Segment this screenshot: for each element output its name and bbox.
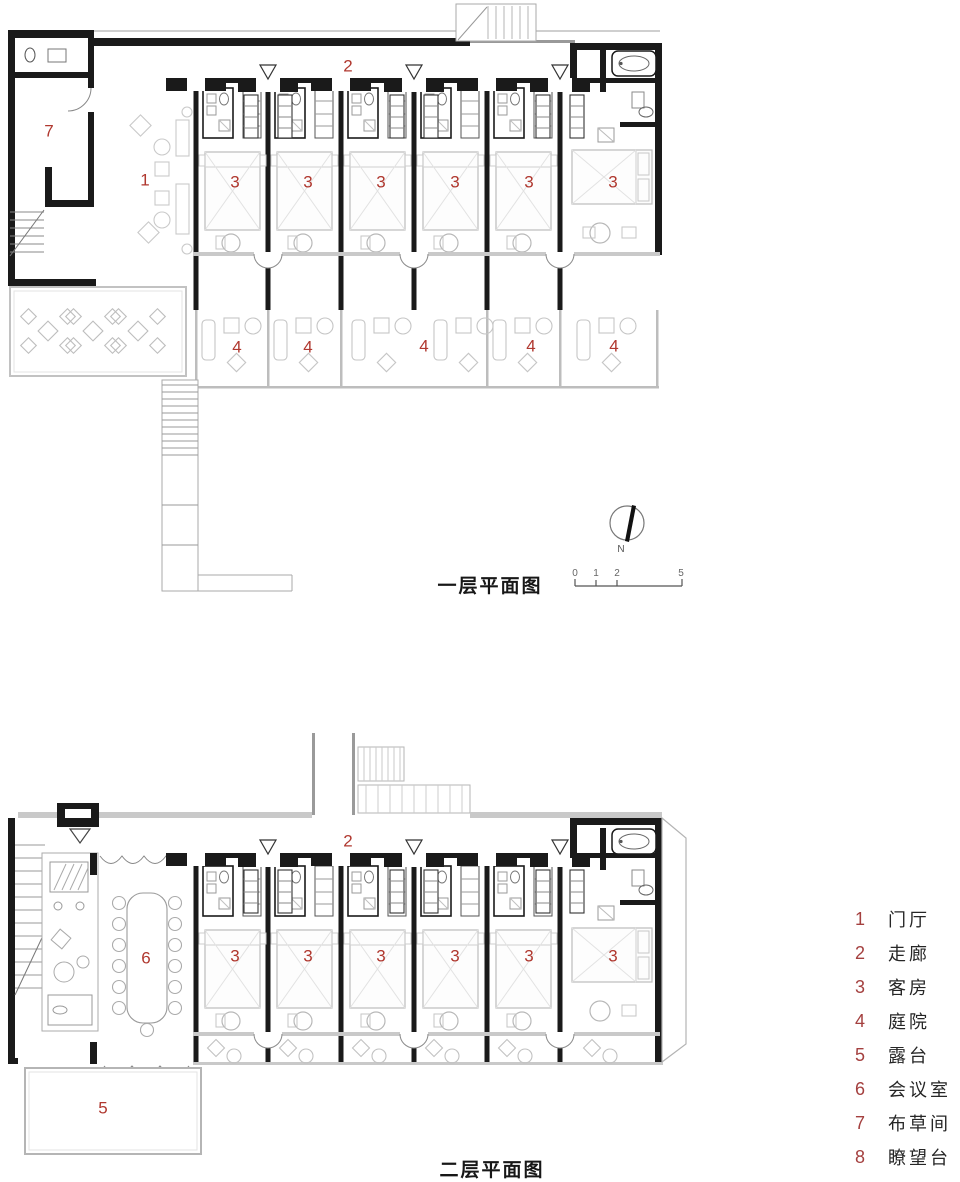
- lobby-furniture: [130, 107, 192, 254]
- legend-label: 露台: [888, 1042, 930, 1068]
- room-label-guest: 3: [230, 948, 239, 965]
- legend-row: 8 瞭望台: [848, 1140, 951, 1174]
- legend-label: 客房: [888, 974, 930, 1000]
- room-label-guest: 3: [450, 174, 459, 191]
- legend-label: 庭院: [888, 1008, 930, 1034]
- legend-label: 会议室: [888, 1076, 951, 1102]
- scale-tick: 2: [614, 568, 620, 579]
- room-label-lobby: 1: [140, 172, 149, 189]
- legend-number: 6: [848, 1079, 872, 1100]
- room-label-corridor: 2: [343, 58, 352, 75]
- plan2-title: 二层平面图: [439, 1155, 544, 1182]
- legend-label: 走廊: [888, 940, 930, 966]
- legend-number: 5: [848, 1045, 872, 1066]
- legend-number: 4: [848, 1011, 872, 1032]
- room-label-corridor: 2: [343, 833, 352, 850]
- scale-tick: 5: [678, 568, 684, 579]
- lookout-deck-outline: [662, 818, 686, 1062]
- room-label-meeting: 6: [141, 950, 150, 967]
- room-label-courtyard: 4: [419, 338, 428, 355]
- room-label-guest: 3: [230, 174, 239, 191]
- legend-number: 1: [848, 909, 872, 930]
- legend-number: 2: [848, 943, 872, 964]
- room-label-courtyard: 4: [232, 339, 241, 356]
- room-label-linen: 7: [44, 123, 53, 140]
- room-label-guest: 3: [524, 174, 533, 191]
- room-label-courtyard: 4: [303, 339, 312, 356]
- legend-row: 4 庭院: [848, 1004, 951, 1038]
- scale-bar: [575, 579, 682, 586]
- legend-row: 3 客房: [848, 970, 951, 1004]
- legend-row: 2 走廊: [848, 936, 951, 970]
- legend: 1 门厅 2 走廊 3 客房 4 庭院 5 露台 6 会议室 7 布草间 8 瞭…: [848, 902, 951, 1174]
- floor-plan-sheet: 7 1 2 3 3 3 3 3 3 4 4 4 4 4 2 6 3 3 3 3 …: [0, 0, 960, 1182]
- legend-number: 7: [848, 1113, 872, 1134]
- legend-label: 门厅: [888, 906, 930, 932]
- exterior-stair: [162, 380, 292, 591]
- legend-number: 8: [848, 1147, 872, 1168]
- room-label-courtyard: 4: [526, 338, 535, 355]
- legend-row: 1 门厅: [848, 902, 951, 936]
- north-arrow-icon: [610, 505, 644, 542]
- legend-label: 瞭望台: [888, 1144, 951, 1170]
- room-label-courtyard: 4: [609, 338, 618, 355]
- plan1-title: 一层平面图: [437, 571, 542, 598]
- room-label-guest: 3: [376, 174, 385, 191]
- scale-tick: 1: [593, 568, 599, 579]
- room-label-guest: 3: [524, 948, 533, 965]
- room-label-guest: 3: [450, 948, 459, 965]
- room-label-guest: 3: [608, 948, 617, 965]
- room-label-guest: 3: [376, 948, 385, 965]
- room-label-guest: 3: [608, 174, 617, 191]
- room-label-terrace: 5: [98, 1100, 107, 1117]
- legend-number: 3: [848, 977, 872, 998]
- floor2-drawing: [8, 733, 686, 1154]
- scale-tick: 0: [572, 568, 578, 579]
- legend-row: 7 布草间: [848, 1106, 951, 1140]
- north-label: N: [617, 544, 624, 555]
- room-label-guest: 3: [303, 948, 312, 965]
- room-label-guest: 3: [303, 174, 312, 191]
- legend-label: 布草间: [888, 1110, 951, 1136]
- floor1-drawing: [8, 4, 682, 591]
- legend-row: 5 露台: [848, 1038, 951, 1072]
- legend-row: 6 会议室: [848, 1072, 951, 1106]
